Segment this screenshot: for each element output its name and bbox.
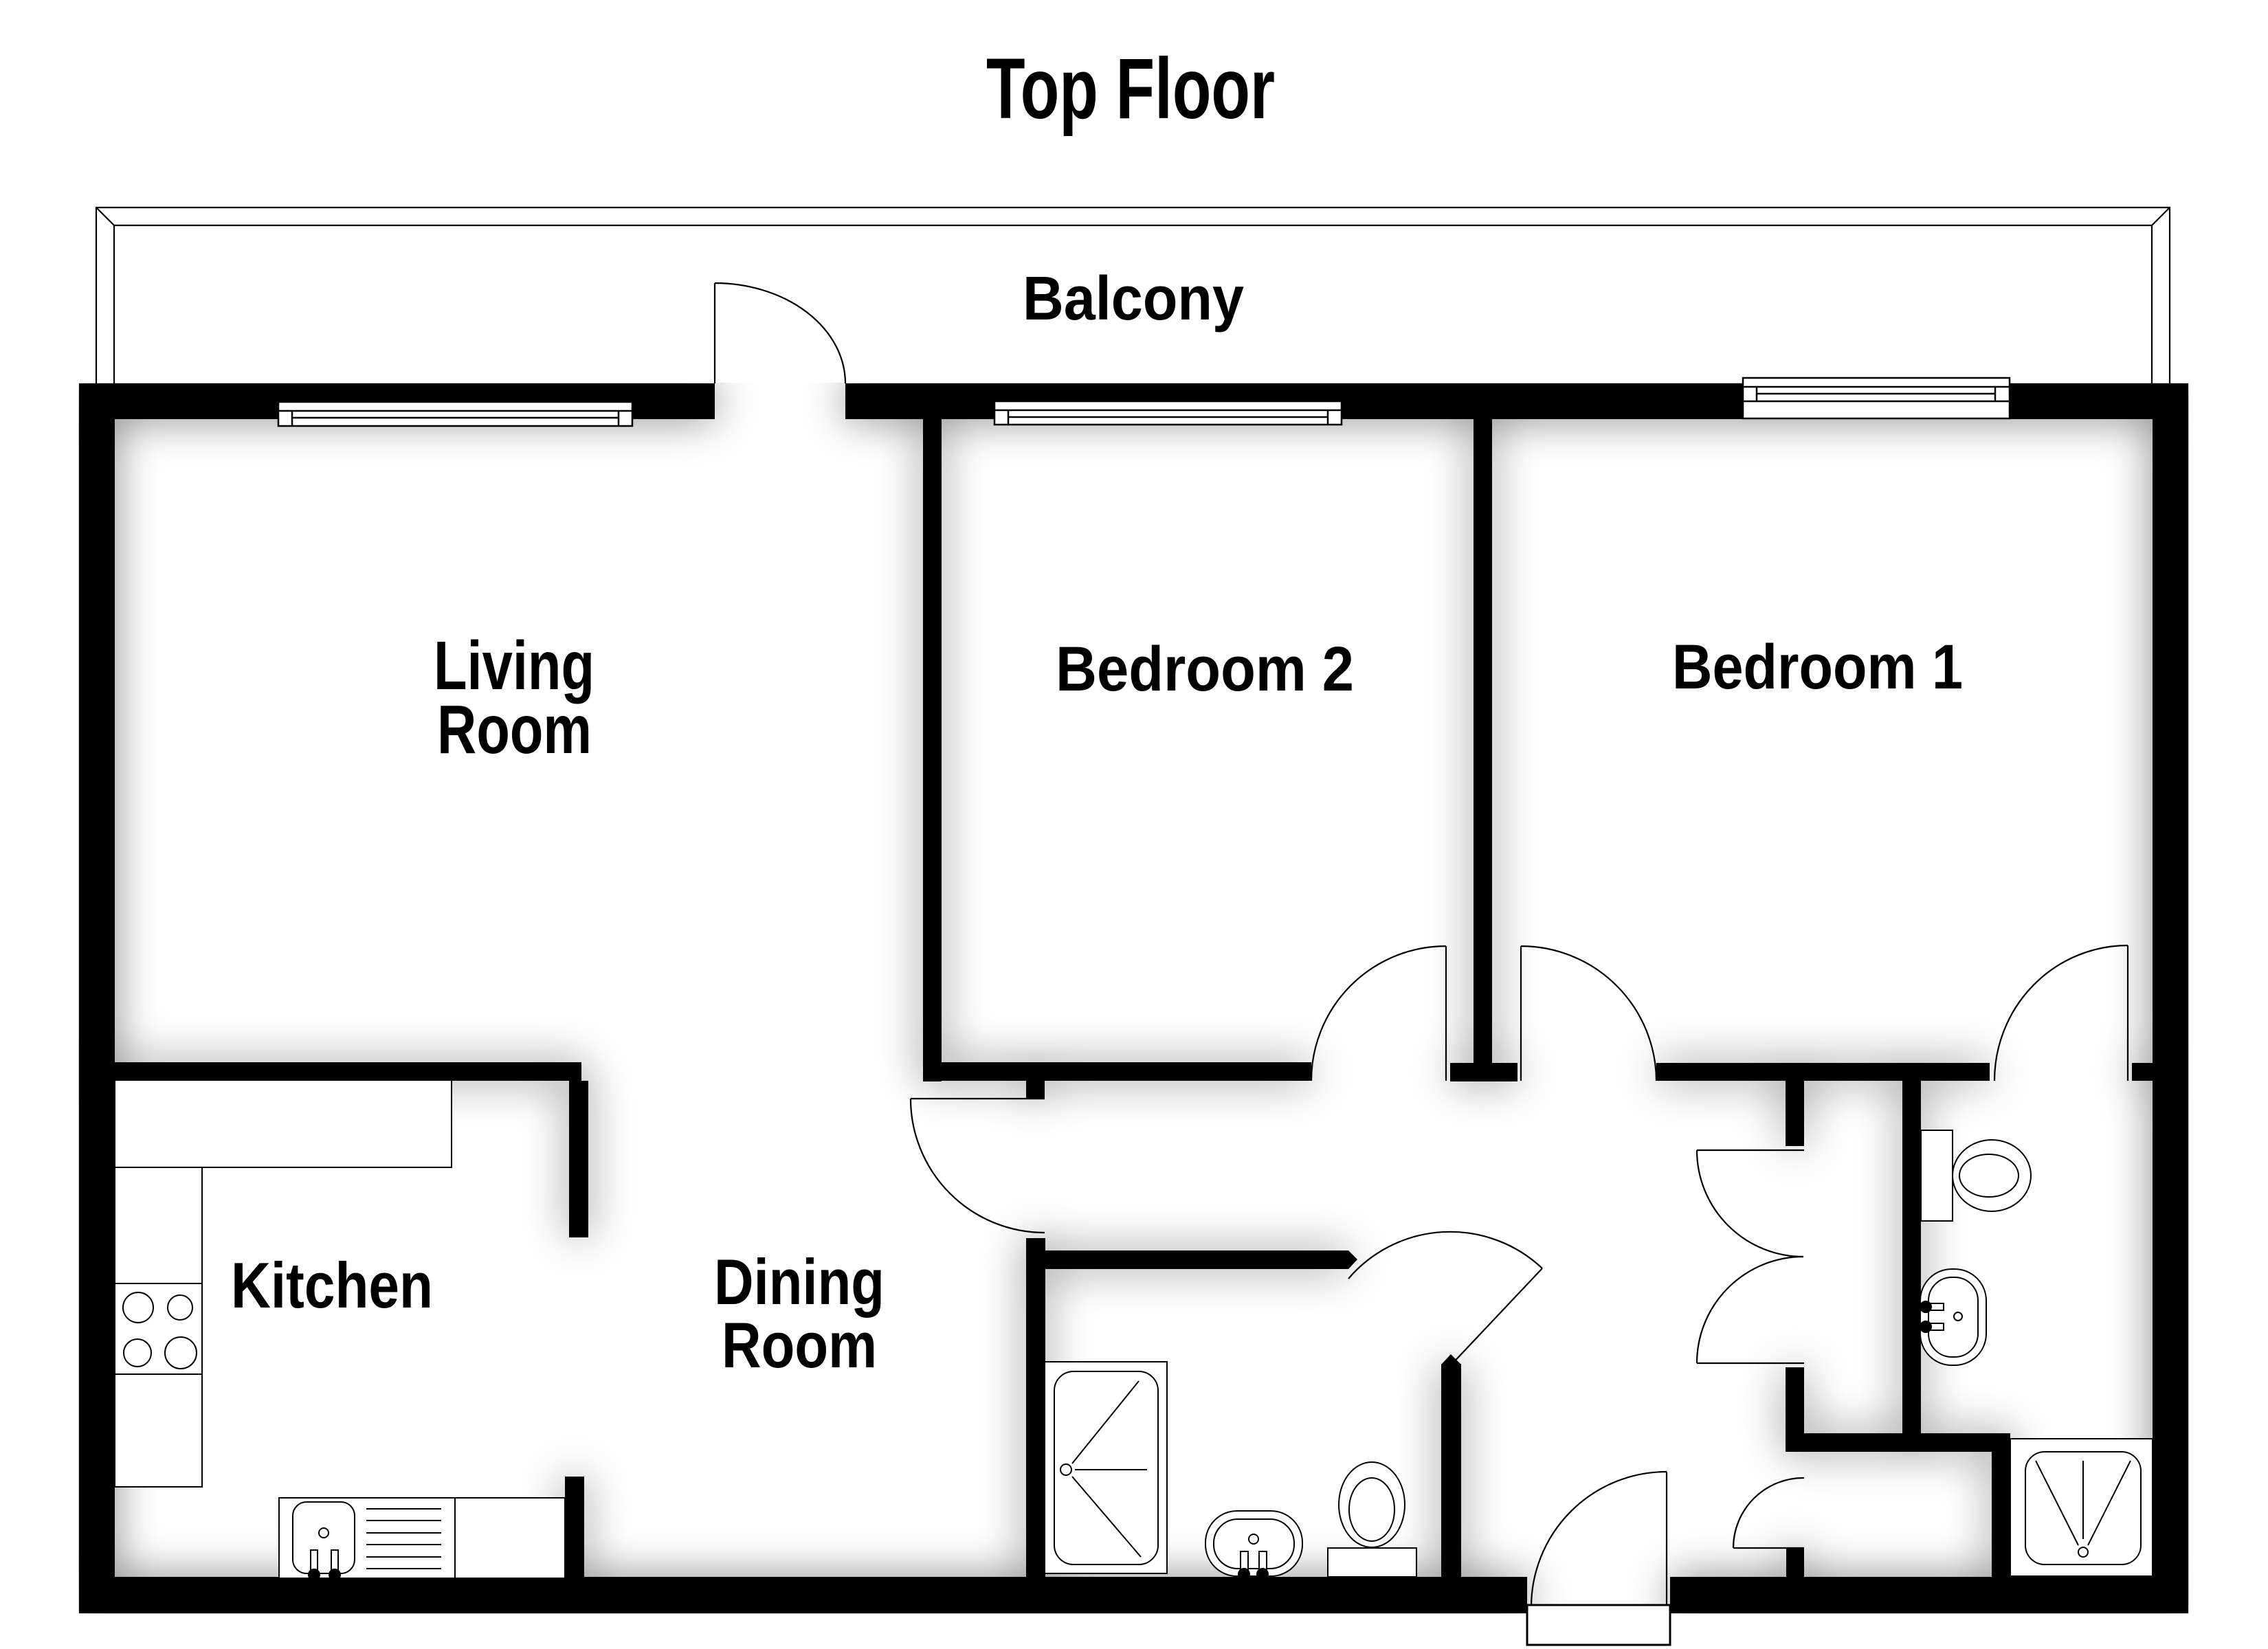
svg-text:Balcony: Balcony xyxy=(1023,265,1244,333)
svg-text:Kitchen: Kitchen xyxy=(231,1249,433,1321)
svg-text:Dining: Dining xyxy=(714,1246,885,1318)
svg-text:Top Floor: Top Floor xyxy=(986,41,1275,137)
svg-text:Bedroom 1: Bedroom 1 xyxy=(1672,632,1963,702)
svg-text:Room: Room xyxy=(722,1309,877,1381)
svg-text:Room: Room xyxy=(437,691,592,768)
svg-text:Bedroom 2: Bedroom 2 xyxy=(1056,634,1354,704)
